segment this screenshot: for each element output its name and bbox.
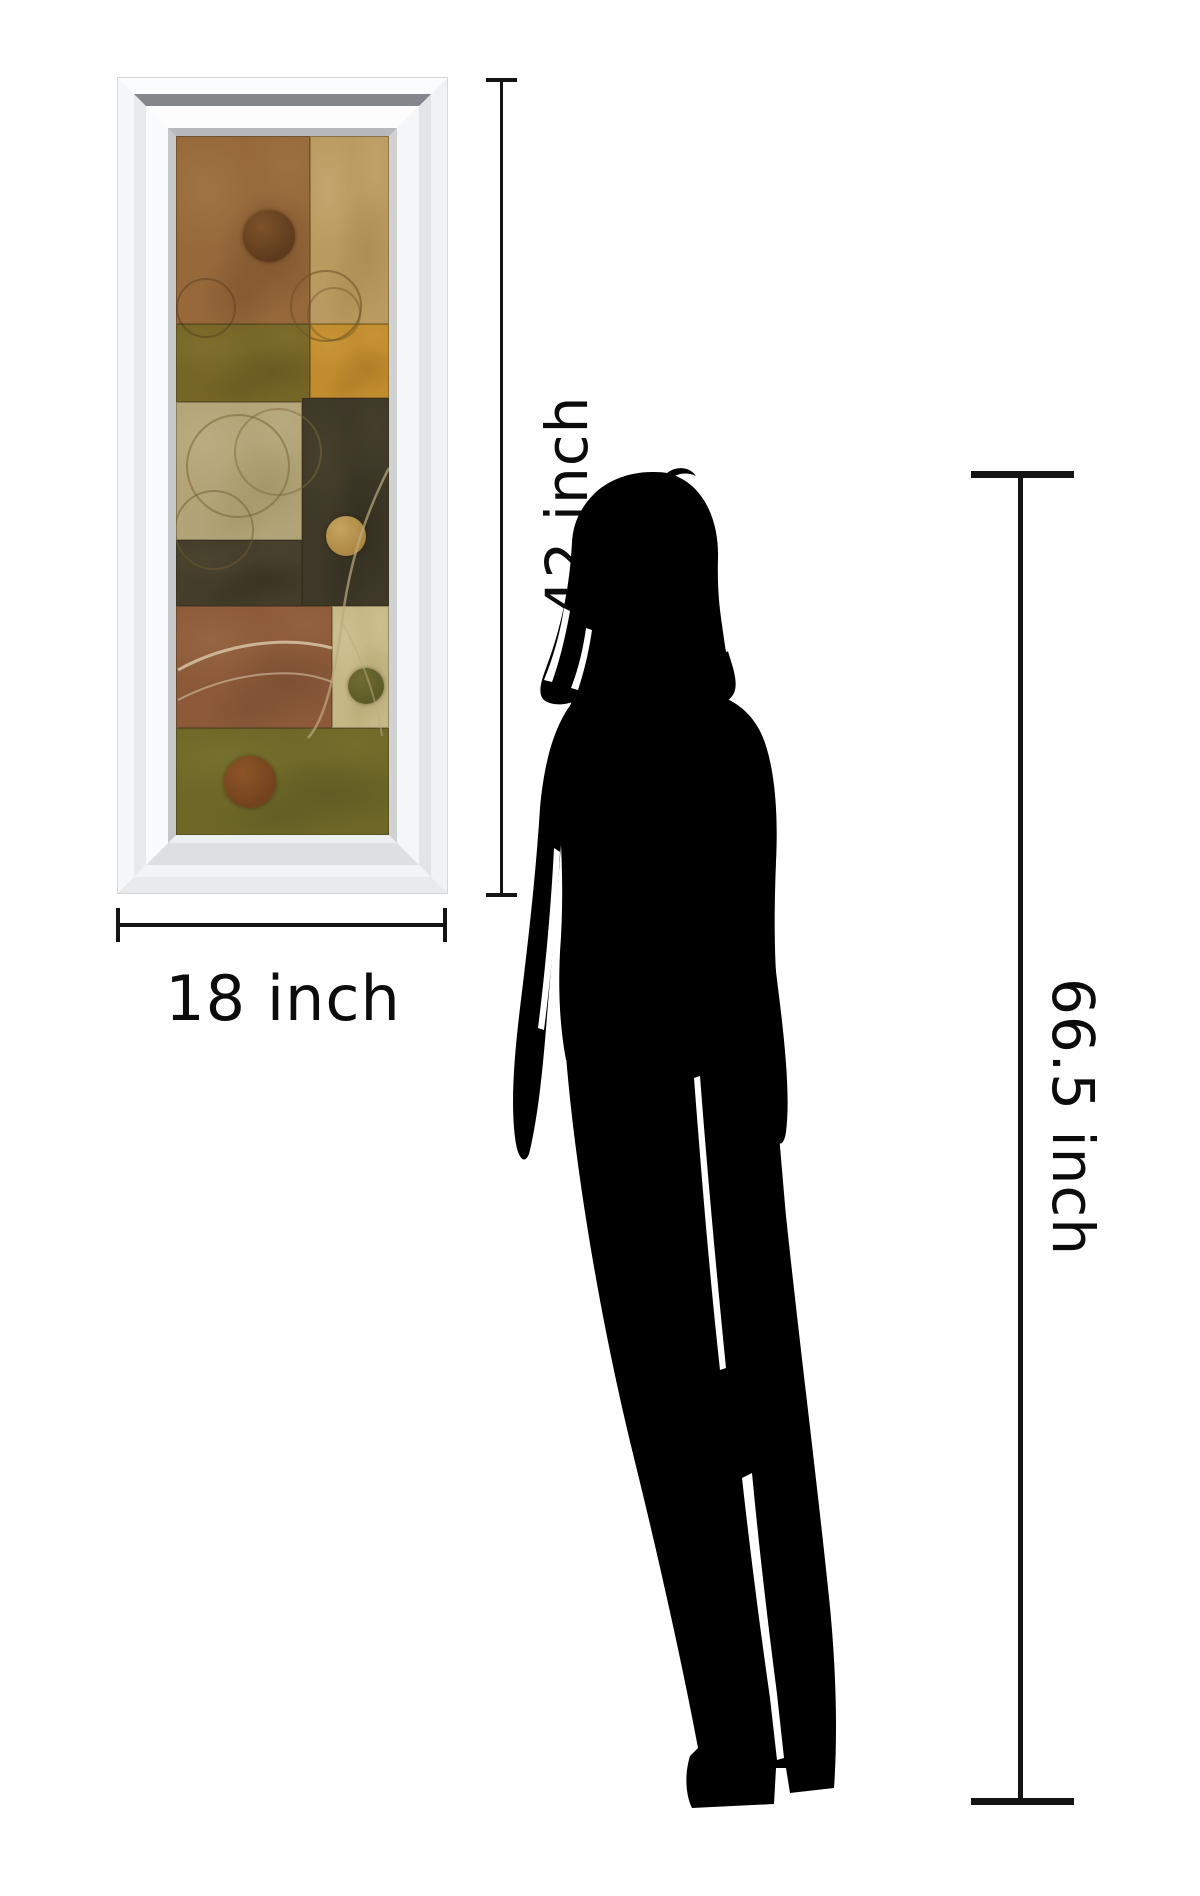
woman-silhouette xyxy=(480,468,840,1813)
product-size-comparison: { "page": { "background": "#ffffff" }, "… xyxy=(0,0,1200,1896)
art-block xyxy=(176,728,389,835)
art-height-top-tick xyxy=(486,78,517,82)
frame-inner-bevel xyxy=(168,128,397,843)
art-width-right-tick xyxy=(443,908,447,942)
art-circle xyxy=(348,668,384,704)
mirror-frame xyxy=(118,78,447,893)
art-circle xyxy=(224,756,276,808)
art-block xyxy=(332,606,389,728)
frame-outer-lip xyxy=(118,78,447,893)
silhouette-legs xyxy=(566,1056,836,1808)
frame-face xyxy=(146,106,419,865)
figure-height-top-tick xyxy=(971,471,1074,478)
figure-height-label: 66.5 inch xyxy=(1038,977,1108,1257)
art-width-left-tick xyxy=(116,908,120,942)
art-circle-outline xyxy=(176,490,254,570)
silhouette-hair-wisp xyxy=(666,468,696,478)
art-circle-outline xyxy=(176,278,236,338)
abstract-artwork xyxy=(176,136,389,835)
silhouette-hair xyxy=(540,472,735,720)
art-width-label: 18 inch xyxy=(133,962,433,1035)
art-circle-outline xyxy=(307,287,361,341)
art-circle xyxy=(243,210,295,262)
frame-outer-bevel xyxy=(134,94,431,877)
figure-height-bottom-tick xyxy=(971,1798,1074,1805)
art-width-dimension-line xyxy=(118,923,447,927)
silhouette-torso xyxy=(557,693,779,1060)
figure-height-dimension-line xyxy=(1018,473,1023,1803)
art-block xyxy=(176,606,332,728)
art-circle-outline xyxy=(234,408,322,496)
art-circle xyxy=(326,516,366,556)
